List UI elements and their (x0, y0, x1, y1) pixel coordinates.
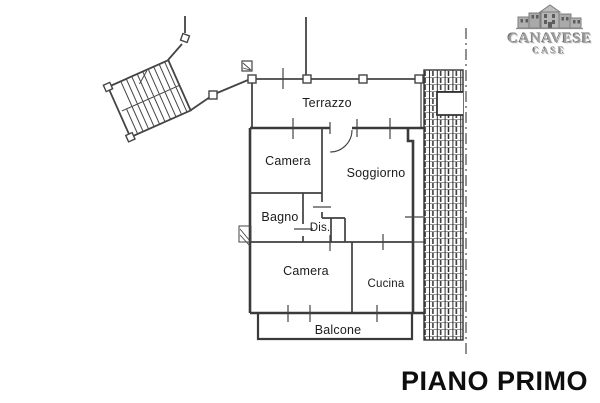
room-label-camera-2: Camera (283, 264, 329, 278)
floor-plan-page: Terrazzo Camera Soggiorno Bagno Dis. Cam… (0, 0, 600, 403)
agency-logo-name: CANAVESE (500, 32, 600, 47)
door-arc (330, 130, 352, 152)
room-label-camera-1: Camera (265, 154, 311, 168)
room-label-disimpegno: Dis. (310, 222, 331, 234)
room-label-soggiorno: Soggiorno (347, 166, 406, 180)
stair-connecting-walls (168, 16, 306, 110)
staircase (103, 57, 192, 142)
floor-plan-drawing (0, 0, 600, 403)
room-label-bagno: Bagno (261, 210, 298, 224)
agency-logo-subtitle: CASE (500, 47, 600, 56)
room-label-cucina: Cucina (368, 278, 405, 290)
floor-title: PIANO PRIMO (401, 366, 588, 397)
room-label-terrazzo: Terrazzo (302, 96, 352, 110)
agency-logo: CANAVESE CASE (500, 0, 600, 56)
room-label-balcone: Balcone (315, 323, 362, 337)
adjacent-building-hatch (424, 70, 463, 340)
